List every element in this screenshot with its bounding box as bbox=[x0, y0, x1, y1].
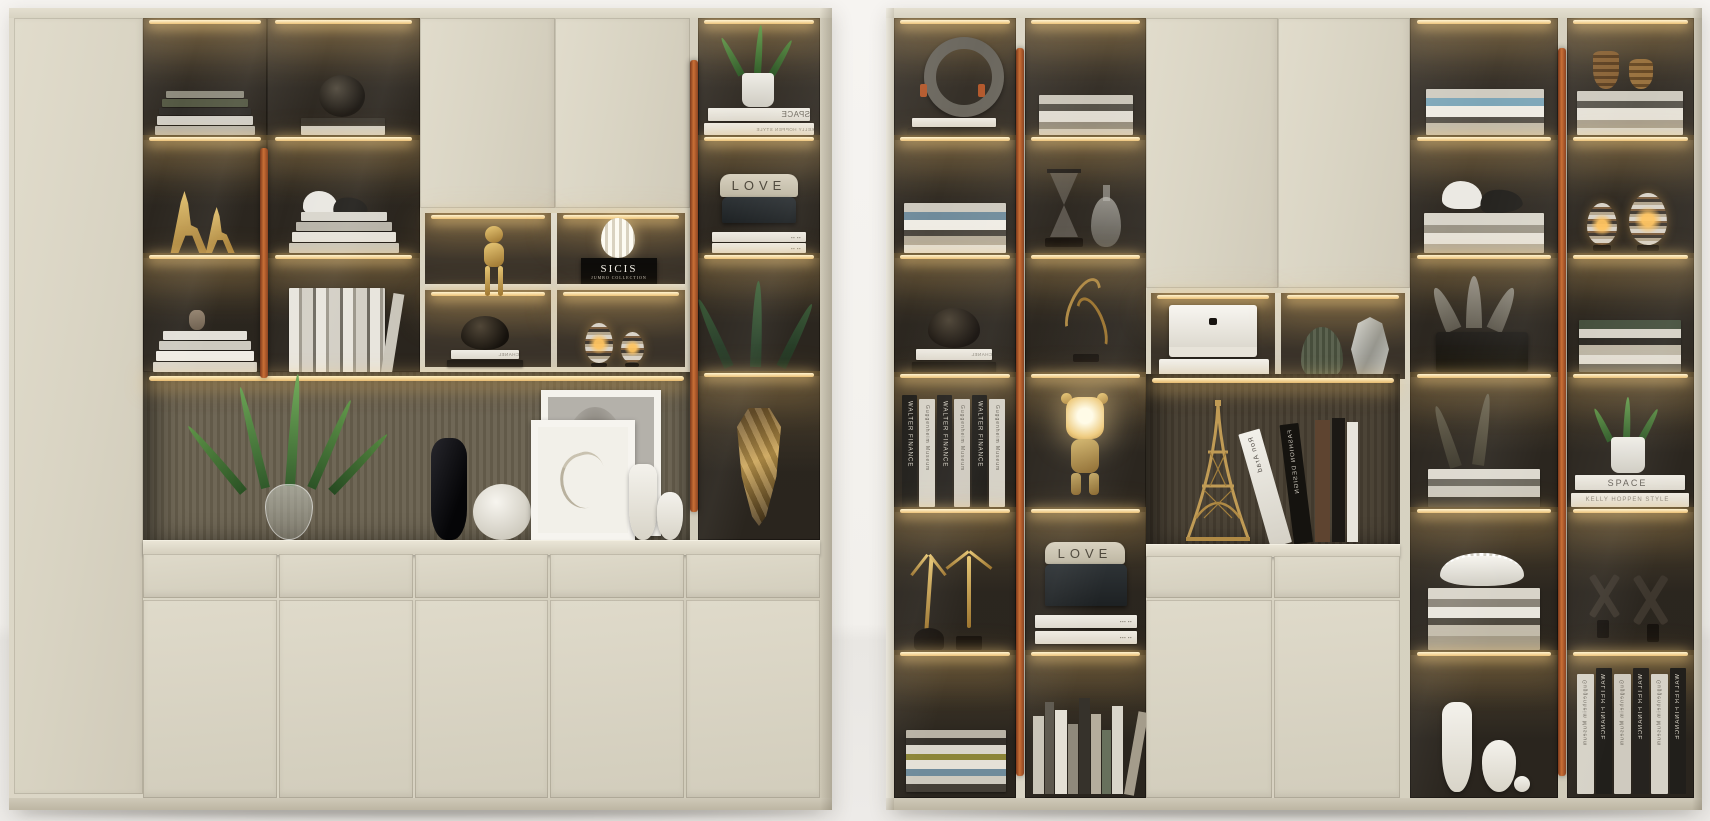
copper-handle[interactable] bbox=[1558, 48, 1566, 776]
spine-label: Ron Arad bbox=[1246, 431, 1265, 474]
x-sculpture bbox=[1628, 572, 1669, 627]
book-spine: WALTER FINANCE bbox=[1633, 668, 1649, 794]
spine-label: WALTER FINANCE bbox=[907, 395, 913, 467]
book-marks: ▪▪ ▪▪ bbox=[791, 235, 806, 240]
spine-label: Guggenheim Museum bbox=[1620, 674, 1626, 746]
led-strip bbox=[1573, 509, 1687, 513]
drawer[interactable] bbox=[1146, 556, 1272, 598]
right-glass-column-1[interactable]: CHANEL WALTER FINANCE Guggenheim Museum … bbox=[894, 18, 1016, 798]
display-cell: WALTER FINANCE Guggenheim Museum WALTER … bbox=[1567, 650, 1694, 798]
led-strip bbox=[1417, 137, 1550, 141]
book-stack bbox=[1424, 213, 1544, 253]
display-cell bbox=[698, 371, 820, 540]
dove-figurine bbox=[1442, 181, 1482, 209]
striped-candle-egg bbox=[621, 332, 644, 363]
spine-label: WALTER FINANCE bbox=[977, 395, 983, 467]
open-niche bbox=[143, 372, 690, 540]
chanel-label: CHANEL bbox=[966, 352, 992, 357]
book-stack bbox=[1428, 588, 1540, 650]
upper-display-niche bbox=[1146, 288, 1410, 384]
glass-vase bbox=[265, 484, 313, 540]
led-strip bbox=[1031, 652, 1140, 656]
plant-leaf bbox=[185, 423, 247, 495]
dancer-arm bbox=[946, 550, 970, 570]
chanel-book: CHANEL bbox=[916, 349, 992, 360]
side-edge bbox=[1692, 8, 1702, 810]
led-strip bbox=[149, 20, 261, 24]
display-cell bbox=[1410, 650, 1558, 798]
display-cell bbox=[143, 135, 267, 258]
book-spine: WALTER FINANCE bbox=[902, 395, 917, 507]
led-strip bbox=[1573, 652, 1687, 656]
monkey-leg bbox=[498, 266, 503, 296]
led-strip bbox=[1031, 137, 1140, 141]
led-strip bbox=[704, 20, 814, 24]
monkey-leg bbox=[485, 266, 490, 296]
display-cell bbox=[267, 18, 420, 140]
plant-leaf bbox=[768, 39, 794, 77]
book bbox=[1068, 724, 1078, 794]
egg-stand bbox=[1637, 245, 1659, 251]
led-strip bbox=[900, 509, 1010, 513]
decanter-neck bbox=[1103, 185, 1110, 201]
plant-leaf bbox=[236, 386, 270, 489]
deer-figurine bbox=[167, 191, 213, 253]
space-label: SPACE bbox=[1608, 478, 1653, 488]
white-book: ▪▪▪ ▪▪ bbox=[1035, 615, 1137, 628]
hourglass-top bbox=[1047, 169, 1081, 173]
drawer[interactable] bbox=[415, 554, 549, 598]
book-spine: Guggenheim Museum bbox=[954, 399, 970, 507]
egg-stand bbox=[591, 363, 607, 367]
display-cell bbox=[894, 135, 1016, 258]
dancer-arm bbox=[910, 554, 928, 576]
green-ribbed-vase bbox=[1301, 327, 1343, 379]
plant-leaf bbox=[754, 25, 764, 73]
left-glass-column-2[interactable] bbox=[267, 18, 420, 372]
plinth bbox=[9, 798, 832, 810]
love-sign: LOVE bbox=[720, 174, 798, 197]
led-strip bbox=[1573, 374, 1687, 378]
cabinet-door[interactable] bbox=[550, 600, 684, 798]
drawer[interactable] bbox=[550, 554, 684, 598]
book bbox=[908, 128, 1000, 135]
side-edge bbox=[820, 8, 832, 810]
led-strip bbox=[563, 292, 678, 296]
chanel-label: CHANEL bbox=[493, 352, 519, 357]
hourglass-glass bbox=[1050, 173, 1078, 205]
display-cell bbox=[1410, 18, 1558, 140]
book bbox=[301, 212, 387, 221]
white-jug-vase bbox=[657, 492, 683, 540]
kelly-label: KELLY HOPPEN STYLE bbox=[1586, 497, 1675, 503]
display-cell bbox=[1025, 135, 1146, 258]
right-cabinet: CHANEL WALTER FINANCE Guggenheim Museum … bbox=[886, 8, 1702, 810]
led-strip bbox=[1573, 137, 1687, 141]
display-cell bbox=[894, 507, 1016, 655]
cabinet-door[interactable] bbox=[686, 600, 820, 798]
white-ball bbox=[1514, 776, 1530, 792]
upper-door-left[interactable] bbox=[1146, 18, 1278, 288]
led-strip bbox=[1573, 20, 1687, 24]
spine-label: WALTER FINANCE bbox=[1601, 668, 1607, 740]
plant-leaf bbox=[719, 36, 745, 76]
book-stack bbox=[155, 90, 255, 135]
book bbox=[292, 232, 396, 242]
display-cell bbox=[143, 18, 267, 140]
plant-leaf bbox=[1592, 407, 1614, 442]
led-strip bbox=[704, 255, 814, 259]
book-spine: WALTER FINANCE bbox=[1670, 668, 1686, 794]
fern-leaf bbox=[698, 297, 734, 369]
storage-box bbox=[722, 197, 796, 223]
left-tall-door[interactable] bbox=[14, 18, 143, 794]
display-cell bbox=[1410, 135, 1558, 258]
book bbox=[1033, 716, 1044, 794]
book bbox=[1079, 698, 1090, 794]
book bbox=[156, 351, 254, 361]
book-stack bbox=[904, 203, 1006, 253]
led-strip bbox=[1031, 20, 1140, 24]
white-gift-box bbox=[1169, 305, 1257, 357]
counter-top bbox=[143, 540, 820, 555]
spine-label: Guggenheim Museum bbox=[1657, 674, 1663, 746]
led-strip bbox=[900, 20, 1010, 24]
storage-box bbox=[1045, 564, 1127, 606]
hourglass-base bbox=[1045, 238, 1083, 247]
copper-handle[interactable] bbox=[260, 148, 268, 378]
display-cell: LOVE ▪▪▪ ▪▪ ▪▪▪ ▪▪ bbox=[1025, 507, 1146, 655]
leaf-fan bbox=[1466, 276, 1482, 328]
white-jug-vase bbox=[1482, 740, 1516, 792]
display-cell bbox=[894, 650, 1016, 798]
left-glass-column-1[interactable] bbox=[143, 18, 267, 372]
niche-cell: CHANEL bbox=[425, 290, 551, 367]
display-cell bbox=[1025, 372, 1146, 512]
dark-sphere-vase bbox=[319, 75, 365, 117]
deer-figurine bbox=[203, 207, 239, 253]
display-cell: SPACE KELLY HOPPEN STYLE bbox=[698, 18, 820, 140]
display-cell bbox=[698, 253, 820, 376]
book bbox=[296, 222, 392, 231]
led-strip bbox=[1417, 20, 1550, 24]
book-spine-row: WALTER FINANCE Guggenheim Museum WALTER … bbox=[902, 395, 1005, 507]
bear-leg bbox=[1071, 473, 1081, 495]
book bbox=[157, 116, 253, 125]
book-spine bbox=[1315, 420, 1330, 542]
display-cell bbox=[1567, 18, 1694, 140]
led-strip bbox=[1417, 374, 1550, 378]
led-strip bbox=[1417, 255, 1550, 259]
white-jug-vase bbox=[629, 464, 657, 540]
led-strip bbox=[1287, 295, 1399, 299]
book bbox=[166, 91, 244, 98]
spine-label: Guggenheim Museum bbox=[959, 399, 965, 471]
sculpture-base bbox=[1073, 354, 1099, 362]
leaning-designer-books: Ron Arad FASHION DESIGN bbox=[1270, 416, 1358, 542]
dancer-figurine bbox=[952, 542, 986, 650]
sicis-box: SICIS JUMBO COLLECTION bbox=[581, 258, 657, 284]
dancer-body bbox=[924, 556, 933, 630]
display-cell bbox=[1025, 253, 1146, 377]
dancer-base bbox=[914, 628, 944, 650]
kelly-hoppen-book: KELLY HOPPEN STYLE bbox=[704, 123, 814, 135]
striped-candle-egg bbox=[585, 323, 613, 363]
display-cell bbox=[1410, 253, 1558, 377]
display-cell bbox=[1567, 507, 1694, 655]
space-book: SPACE bbox=[1575, 475, 1685, 490]
book-marks: ▪▪▪ ▪▪ bbox=[1120, 635, 1137, 640]
white-book: ▪▪▪ ▪▪ bbox=[1035, 631, 1137, 644]
led-strip bbox=[704, 137, 814, 141]
spine-label: Guggenheim Museum bbox=[1583, 674, 1589, 746]
left-cabinet: SICIS JUMBO COLLECTION CHANEL bbox=[9, 8, 832, 810]
center-display-niche: SICIS JUMBO COLLECTION CHANEL bbox=[420, 208, 690, 372]
book-spine: WALTER FINANCE bbox=[937, 395, 952, 507]
book-spine: WALTER FINANCE bbox=[1596, 668, 1612, 794]
sicis-label: SICIS bbox=[601, 263, 638, 275]
small-vase bbox=[189, 310, 205, 330]
book-spine: Guggenheim Museum bbox=[1614, 674, 1631, 794]
scalloped-bowl bbox=[1440, 553, 1524, 586]
book-stack bbox=[1039, 95, 1133, 135]
display-cell bbox=[267, 253, 420, 372]
cabinet-door[interactable] bbox=[143, 600, 277, 798]
eiffel-tower-model bbox=[1180, 400, 1256, 542]
monkey-head bbox=[485, 226, 503, 243]
drawer[interactable] bbox=[1274, 556, 1400, 598]
sculpture-stand bbox=[1647, 624, 1659, 642]
drawer-row bbox=[143, 554, 820, 598]
book-stack bbox=[153, 330, 257, 372]
plant-pot bbox=[742, 73, 774, 107]
egg-stand bbox=[1593, 245, 1611, 251]
book-spine bbox=[1332, 418, 1345, 542]
book-spine: Guggenheim Museum bbox=[989, 399, 1005, 507]
display-cell: WALTER FINANCE Guggenheim Museum WALTER … bbox=[894, 372, 1016, 512]
upper-door-left[interactable] bbox=[420, 18, 555, 208]
book-marks: ▪▪ ▪▪ bbox=[791, 246, 806, 251]
cabinet-door[interactable] bbox=[1274, 600, 1400, 798]
plant-leaf bbox=[1623, 397, 1631, 439]
led-strip bbox=[1031, 509, 1140, 513]
display-cell bbox=[1410, 507, 1558, 655]
standing-books bbox=[1033, 674, 1134, 794]
book-marks: ▪▪▪ ▪▪ bbox=[1120, 619, 1137, 624]
spine-label: WALTER FINANCE bbox=[1675, 668, 1681, 740]
led-strip bbox=[900, 255, 1010, 259]
bird-figurine bbox=[1478, 186, 1524, 217]
houseplant bbox=[209, 380, 379, 540]
bear-lamp bbox=[1053, 391, 1117, 501]
dark-box bbox=[1436, 332, 1528, 372]
dancer-body bbox=[967, 556, 971, 628]
bear-head-glow bbox=[1066, 397, 1104, 439]
dried-fern bbox=[1431, 404, 1462, 469]
x-sculpture bbox=[1585, 572, 1621, 620]
display-cell bbox=[1410, 372, 1558, 512]
egg-stand bbox=[625, 363, 639, 367]
cabinet-door[interactable] bbox=[279, 600, 413, 798]
spine-label: FASHION DESIGN bbox=[1286, 424, 1301, 495]
led-strip bbox=[900, 652, 1010, 656]
dancer-figurine bbox=[912, 550, 946, 650]
scene: SICIS JUMBO COLLECTION CHANEL bbox=[0, 0, 1710, 821]
left-glass-column-3[interactable]: SPACE KELLY HOPPEN STYLE LOVE ▪▪ ▪▪ ▪▪ ▪… bbox=[698, 18, 820, 540]
book-spine bbox=[1347, 422, 1358, 542]
ring-sculpture bbox=[924, 37, 1004, 117]
led-strip bbox=[1417, 652, 1550, 656]
bear-leg bbox=[1089, 473, 1099, 495]
carved-sphere-vase bbox=[473, 484, 531, 540]
display-cell bbox=[1567, 135, 1694, 258]
bronze-woven-vase bbox=[1593, 51, 1619, 89]
ring-clip bbox=[978, 84, 985, 97]
gold-monkey-figurine bbox=[477, 226, 511, 300]
monkey-body bbox=[484, 243, 504, 267]
side-edge bbox=[886, 8, 894, 810]
cabinet-door[interactable] bbox=[1146, 600, 1272, 798]
book-stack bbox=[1579, 320, 1681, 372]
drawer[interactable] bbox=[143, 554, 277, 598]
book bbox=[1091, 714, 1101, 794]
box-clasp bbox=[1209, 318, 1217, 325]
led-strip bbox=[1031, 374, 1140, 378]
book bbox=[1045, 702, 1054, 794]
white-book: ▪▪ ▪▪ bbox=[712, 232, 806, 242]
fern-leaf bbox=[750, 281, 764, 367]
plant-leaf bbox=[285, 374, 303, 486]
chanel-book: CHANEL bbox=[451, 350, 519, 359]
display-cell bbox=[1567, 253, 1694, 377]
led-strip bbox=[1157, 295, 1269, 299]
love-sign: LOVE bbox=[1045, 542, 1125, 564]
right-glass-column-3[interactable] bbox=[1410, 18, 1558, 798]
book-leaning bbox=[1124, 711, 1146, 795]
glass-decanter bbox=[1091, 197, 1121, 247]
white-book: ▪▪ ▪▪ bbox=[712, 243, 806, 253]
plinth bbox=[886, 798, 1702, 810]
book bbox=[155, 126, 255, 135]
hourglass-glass bbox=[1050, 205, 1078, 237]
book-spine: Guggenheim Museum bbox=[919, 399, 935, 507]
led-strip bbox=[149, 137, 261, 141]
white-jug-vase bbox=[1442, 702, 1472, 792]
book-stack bbox=[301, 118, 385, 135]
book bbox=[159, 108, 251, 115]
book bbox=[1112, 706, 1123, 794]
display-cell bbox=[894, 18, 1016, 140]
space-book: SPACE bbox=[708, 108, 810, 121]
dark-bowl bbox=[461, 316, 509, 350]
dried-fern bbox=[1472, 393, 1494, 466]
cabinet-door[interactable] bbox=[415, 600, 549, 798]
upper-door-right[interactable] bbox=[1278, 18, 1410, 288]
plant-leaf bbox=[328, 431, 390, 495]
led-strip bbox=[900, 137, 1010, 141]
upper-door-right[interactable] bbox=[555, 18, 690, 208]
led-strip bbox=[1417, 509, 1550, 513]
led-strip bbox=[900, 374, 1010, 378]
love-label: LOVE bbox=[732, 178, 787, 193]
book bbox=[1102, 730, 1111, 794]
black-vase bbox=[431, 438, 467, 540]
book-stack bbox=[1426, 89, 1544, 135]
spine-label: Guggenheim Museum bbox=[924, 399, 930, 471]
book bbox=[159, 341, 251, 350]
book bbox=[912, 362, 996, 372]
lower-door-row bbox=[143, 600, 820, 798]
book-spine: Guggenheim Museum bbox=[1651, 674, 1668, 794]
led-strip bbox=[1031, 255, 1140, 259]
display-cell bbox=[1025, 650, 1146, 798]
kelly-label: KELLY HOPPEN STYLE bbox=[751, 127, 814, 132]
copper-handle[interactable] bbox=[690, 60, 698, 512]
book-spine-row: WALTER FINANCE Guggenheim Museum WALTER … bbox=[1577, 666, 1686, 794]
led-strip bbox=[1152, 378, 1394, 383]
copper-handle[interactable] bbox=[1016, 48, 1024, 776]
drawer[interactable] bbox=[279, 554, 413, 598]
book-stack bbox=[1428, 469, 1540, 507]
top-rail bbox=[886, 8, 1702, 18]
book-stack bbox=[1577, 91, 1683, 135]
led-strip bbox=[431, 215, 544, 219]
niche-cell bbox=[1151, 293, 1275, 379]
niche-cell bbox=[557, 290, 685, 367]
book bbox=[163, 331, 247, 340]
horse-sketch bbox=[552, 447, 614, 514]
book bbox=[289, 243, 399, 253]
upright-books bbox=[289, 288, 385, 372]
niche-cell bbox=[425, 213, 551, 284]
top-rail bbox=[9, 8, 832, 18]
right-glass-column-4[interactable]: SPACE KELLY HOPPEN STYLE WALTER FINANCE … bbox=[1567, 18, 1694, 798]
antler-sculpture bbox=[1059, 270, 1113, 362]
book bbox=[153, 362, 257, 372]
dark-bowl bbox=[928, 308, 980, 348]
striped-candle-egg bbox=[1587, 203, 1617, 245]
lower-door-row bbox=[1146, 600, 1400, 798]
space-label: SPACE bbox=[776, 110, 810, 119]
sicis-sublabel: JUMBO COLLECTION bbox=[591, 275, 647, 280]
led-strip bbox=[1573, 255, 1687, 259]
book-spine: Guggenheim Museum bbox=[1577, 674, 1594, 794]
fern-leaf bbox=[777, 302, 817, 369]
drawer[interactable] bbox=[686, 554, 820, 598]
base-book bbox=[912, 118, 996, 127]
led-strip bbox=[275, 20, 413, 24]
book bbox=[1055, 710, 1067, 794]
right-glass-column-2[interactable]: LOVE ▪▪▪ ▪▪ ▪▪▪ ▪▪ bbox=[1025, 18, 1146, 798]
book bbox=[162, 99, 248, 107]
led-strip bbox=[149, 255, 261, 259]
book-stack bbox=[289, 211, 399, 253]
kelly-hoppen-book: KELLY HOPPEN STYLE bbox=[1571, 493, 1689, 507]
plant-pot bbox=[1611, 437, 1645, 473]
drawer-row bbox=[1146, 556, 1400, 598]
display-cell: SPACE KELLY HOPPEN STYLE bbox=[1567, 372, 1694, 512]
gold-mask-sculpture bbox=[730, 408, 788, 526]
display-cell bbox=[1025, 18, 1146, 140]
love-label: LOVE bbox=[1058, 546, 1113, 561]
hourglass bbox=[1047, 169, 1081, 247]
bear-body bbox=[1071, 439, 1099, 473]
horse-sketch-frame bbox=[531, 420, 635, 540]
spine-label: WALTER FINANCE bbox=[942, 395, 948, 467]
niche-cell: SICIS JUMBO COLLECTION bbox=[557, 213, 685, 284]
display-cell bbox=[267, 135, 420, 258]
display-cell: CHANEL bbox=[894, 253, 1016, 377]
